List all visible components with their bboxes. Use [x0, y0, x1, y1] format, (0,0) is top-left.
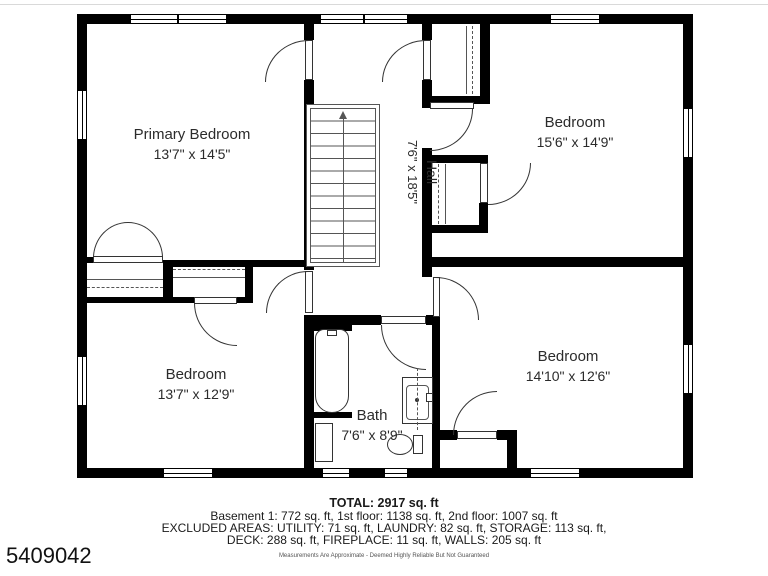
room-dims: 13'7" x 12'9" [96, 385, 296, 404]
room-label-bath: Bath 7'6" x 8'9" [312, 406, 432, 445]
floorplan-page: Primary Bedroom 13'7" x 14'5" Bedroom 15… [0, 0, 768, 576]
wall-bath-east [432, 325, 440, 470]
window [77, 90, 87, 140]
wall-closet4-east [245, 260, 253, 303]
window-pane-line [385, 473, 407, 474]
wall-hall-east-lower-stub [422, 267, 432, 277]
area-summary: TOTAL: 2917 sq. ft Basement 1: 772 sq. f… [0, 496, 768, 546]
wall-bedrooms-divider [422, 257, 683, 267]
room-name: Bath [312, 406, 432, 426]
room-name: Hall [422, 124, 442, 220]
wall-primary-bottom [163, 260, 317, 267]
window [530, 468, 580, 478]
room-label-bedroom-sw: Bedroom 13'7" x 12'9" [96, 365, 296, 404]
door-arc [436, 277, 479, 320]
door-arc [381, 325, 426, 370]
room-label-hall: Hall 7'6" x 18'5" [358, 124, 442, 220]
room-name: Bedroom [475, 113, 675, 133]
window [364, 14, 408, 24]
wall-closet5-east [507, 430, 517, 468]
window [683, 344, 693, 394]
window-pane-line [131, 19, 177, 20]
room-dims: 7'6" x 8'9" [312, 426, 432, 445]
room-dims: 7'6" x 18'5" [403, 124, 422, 220]
total-area-text: TOTAL: 2917 sq. ft [0, 496, 768, 510]
window-pane-line [82, 91, 83, 139]
window-pane-line [82, 357, 83, 405]
stairs-up-arrow-icon [339, 111, 347, 119]
room-name: Bedroom [468, 347, 668, 367]
window-pane-line [179, 19, 226, 20]
closet-shelf-line [466, 26, 467, 94]
closet-rod-line [87, 287, 163, 288]
window [178, 14, 227, 24]
window [384, 468, 408, 478]
wall-hall-east-stub [422, 24, 432, 40]
window-pane-line [323, 473, 349, 474]
door-leaf [430, 102, 474, 109]
door-arc [266, 271, 308, 313]
closet-double-door-arc-left [93, 222, 128, 258]
wall-bath-top-west [304, 315, 381, 325]
closet-shelf-line [87, 279, 163, 280]
door-arc [453, 391, 497, 435]
closet-double-door-arc-right [128, 222, 163, 258]
window-pane-line [688, 109, 689, 157]
window-pane-line [688, 345, 689, 393]
closet-rod-line [472, 26, 473, 94]
wall-bath-west [304, 325, 314, 468]
wall-closet2-east-stub [479, 155, 488, 163]
stairs-direction-line [343, 119, 344, 262]
wall-closet1-east [480, 24, 490, 104]
top-border-line [0, 4, 768, 5]
door-leaf [480, 163, 488, 203]
wall-closet3-bottom [77, 297, 194, 303]
window [683, 108, 693, 158]
wall-closet2-bottom [422, 225, 488, 233]
mls-number: 5409042 [6, 543, 92, 569]
door-arc [194, 303, 237, 346]
excluded-areas-text-2: DECK: 288 sq. ft, FIREPLACE: 11 sq. ft, … [0, 534, 768, 546]
sink-faucet-icon [426, 393, 433, 402]
door-arc [488, 163, 531, 205]
wall-hall-west-stub [304, 24, 314, 40]
disclaimer-text: Measurements Are Approximate - Deemed Hi… [0, 553, 768, 559]
room-dims: 14'10" x 12'6" [468, 367, 668, 386]
room-dims: 13'7" x 14'5" [92, 145, 292, 164]
closet-shelf-line [173, 277, 245, 278]
window [320, 14, 364, 24]
window-pane-line [365, 19, 407, 20]
window-pane-line [164, 473, 212, 474]
closet-shelf-line [445, 164, 446, 224]
room-label-bedroom-se: Bedroom 14'10" x 12'6" [468, 347, 668, 386]
closet-rod-line [173, 269, 245, 270]
window-pane-line [321, 19, 363, 20]
window [163, 468, 213, 478]
room-dims: 15'6" x 14'9" [475, 133, 675, 152]
room-name: Primary Bedroom [92, 125, 292, 145]
bathtub-icon [315, 329, 349, 413]
window [130, 14, 178, 24]
door-leaf [381, 316, 426, 324]
tub-faucet-icon [327, 330, 337, 336]
door-arc [382, 40, 426, 82]
window [77, 356, 87, 406]
window [322, 468, 350, 478]
window-pane-line [551, 19, 599, 20]
window [550, 14, 600, 24]
room-label-bedroom-ne: Bedroom 15'6" x 14'9" [475, 113, 675, 152]
wall-exterior-left [77, 14, 87, 478]
wall-exterior-right [683, 14, 693, 478]
door-arc [265, 40, 309, 82]
room-label-primary-bedroom: Primary Bedroom 13'7" x 14'5" [92, 125, 292, 164]
room-name: Bedroom [96, 365, 296, 385]
window-pane-line [531, 473, 579, 474]
